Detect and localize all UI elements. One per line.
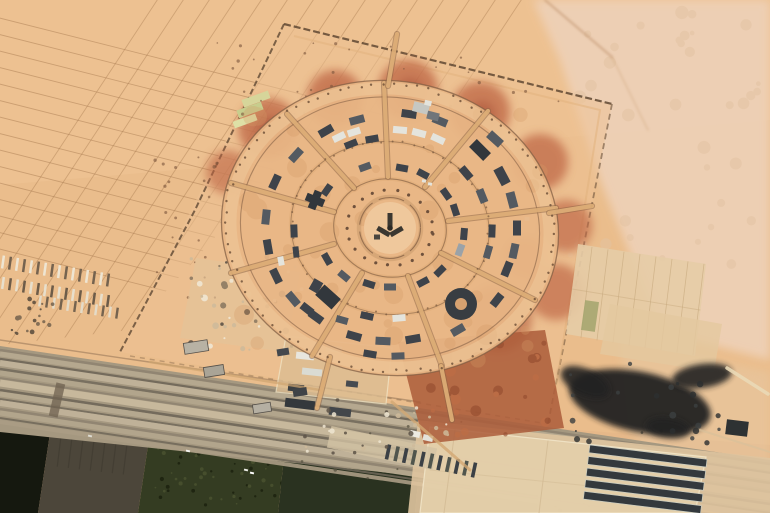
speck-dot (223, 337, 225, 339)
speck-dot (717, 428, 720, 431)
speck-dot (32, 301, 36, 305)
speck-dot (756, 81, 761, 86)
speck-dot (254, 495, 256, 497)
speck-dot (179, 455, 182, 458)
speck-dot (636, 21, 644, 29)
speck-dot (444, 338, 455, 349)
speck-dot (164, 211, 167, 214)
speck-dot (746, 91, 755, 100)
speck-dot (167, 489, 170, 492)
speck-dot (524, 90, 527, 93)
speck-dot (610, 43, 619, 52)
speck-dot (628, 362, 632, 366)
speck-dot (575, 430, 577, 432)
speck-dot (200, 295, 203, 298)
speck-dot (366, 477, 368, 479)
speck-dot (654, 393, 660, 399)
speck-dot (331, 451, 334, 454)
speck-dot (240, 472, 243, 475)
speck-dot (16, 332, 19, 335)
speck-dot (265, 468, 267, 470)
rect (346, 380, 359, 387)
speck-dot (413, 423, 417, 427)
speck-dot (431, 409, 435, 413)
speck-dot (455, 432, 461, 438)
speck-dot (171, 472, 173, 474)
speck-dot (200, 467, 204, 471)
speck-dot (191, 489, 195, 493)
building (261, 209, 271, 225)
speck-dot (329, 428, 334, 433)
speck-dot (690, 392, 696, 398)
speck-dot (249, 467, 253, 471)
speck-dot (558, 100, 560, 102)
speck-dot (270, 484, 273, 487)
speck-dot (396, 413, 401, 418)
speck-dot (620, 215, 631, 226)
speck-dot (197, 281, 203, 287)
speck-dot (694, 404, 698, 408)
speck-dot (332, 412, 337, 417)
speck-dot (47, 323, 51, 327)
speck-dot (231, 470, 234, 473)
speck-dot (403, 68, 405, 70)
speck-dot (704, 164, 711, 171)
speck-dot (545, 417, 551, 423)
speck-dot (194, 483, 197, 486)
speck-dot (738, 98, 750, 110)
speck-dot (26, 330, 29, 333)
speck-dot (27, 297, 32, 302)
building (393, 126, 408, 134)
speck-dot (450, 386, 460, 396)
building (422, 179, 426, 183)
speck-dot (468, 71, 470, 73)
speck-dot (384, 319, 393, 328)
speck-dot (523, 395, 527, 399)
speck-dot (232, 491, 234, 493)
satellite-view (0, 0, 770, 513)
speck-dot (248, 484, 252, 488)
satellite-image (0, 0, 770, 513)
speck-dot (747, 216, 756, 225)
speck-dot (27, 306, 31, 310)
speck-dot (184, 477, 187, 480)
speck-dot (726, 259, 736, 269)
speck-dot (585, 80, 597, 92)
speck-dot (670, 99, 682, 111)
speck-dot (261, 478, 265, 482)
speck-dot (445, 423, 447, 425)
speck-dot (287, 158, 307, 178)
speck-dot (195, 454, 198, 457)
speck-dot (384, 412, 389, 417)
speck-dot (569, 373, 572, 376)
building (391, 352, 404, 359)
speck-dot (251, 336, 264, 349)
speck-dot (254, 319, 258, 323)
speck-dot (38, 315, 41, 318)
speck-dot (460, 56, 462, 58)
speck-dot (156, 271, 158, 273)
speck-dot (232, 323, 236, 327)
speck-dot (51, 302, 55, 306)
speck-dot (685, 47, 695, 57)
speck-dot (586, 439, 592, 445)
speck-dot (243, 90, 245, 92)
speck-dot (344, 432, 347, 435)
speck-dot (33, 319, 37, 323)
speck-dot (234, 463, 236, 465)
speck-dot (378, 440, 381, 443)
speck-dot (435, 66, 437, 68)
speck-dot (412, 444, 415, 447)
speck-dot (229, 279, 233, 283)
speck-dot (11, 329, 13, 331)
building (292, 246, 299, 258)
speck-dot (493, 391, 499, 397)
speck-dot (220, 322, 224, 326)
speck-dot (162, 162, 165, 165)
speck-dot (222, 283, 228, 289)
speck-dot (36, 322, 40, 326)
speck-dot (478, 81, 481, 84)
building (460, 228, 468, 241)
speck-dot (323, 425, 326, 428)
speck-dot (361, 444, 363, 446)
layer-circle-center (359, 197, 421, 259)
speck-dot (407, 425, 410, 428)
speck-dot (163, 490, 166, 493)
speck-dot (210, 470, 212, 472)
speck-dot (179, 481, 183, 485)
speck-dot (296, 91, 298, 93)
speck-dot (231, 67, 234, 70)
speck-dot (212, 165, 216, 169)
speck-dot (697, 141, 710, 154)
building (392, 314, 406, 322)
rect (725, 419, 749, 437)
speck-dot (42, 320, 45, 323)
speck-dot (571, 394, 575, 398)
speck-dot (260, 100, 262, 102)
speck-dot (622, 109, 635, 122)
speck-dot (461, 428, 469, 436)
speck-dot (234, 305, 254, 325)
speck-dot (616, 391, 620, 395)
speck-dot (675, 6, 688, 19)
speck-dot (695, 239, 701, 245)
speck-dot (208, 196, 211, 199)
speck-dot (218, 267, 221, 270)
speck-dot (162, 451, 166, 455)
speck-dot (248, 349, 250, 351)
speck-dot (197, 239, 199, 241)
speck-dot (415, 406, 418, 409)
building (488, 224, 495, 237)
speck-dot (209, 497, 212, 500)
speck-dot (212, 476, 214, 478)
speck-dot (197, 156, 199, 158)
speck-dot (446, 433, 449, 436)
speck-dot (670, 428, 676, 434)
speck-dot (348, 48, 350, 50)
speck-dot (334, 468, 337, 471)
speck-dot (669, 412, 676, 419)
speck-dot (303, 52, 306, 55)
circle (455, 298, 467, 310)
speck-dot (533, 374, 539, 380)
speck-dot (390, 46, 392, 48)
speck-dot (17, 315, 22, 320)
speck-dot (204, 256, 207, 259)
building (384, 284, 396, 291)
speck-dot (155, 487, 157, 489)
speck-dot (232, 495, 235, 498)
speck-dot (627, 234, 634, 241)
building (513, 221, 521, 236)
speck-dot (203, 471, 207, 475)
speck-dot (301, 460, 304, 463)
speck-dot (513, 108, 527, 122)
speck-dot (243, 106, 263, 126)
building (375, 337, 390, 346)
speck-dot (449, 172, 461, 184)
speck-dot (305, 445, 308, 448)
speck-dot (690, 436, 694, 440)
speck-dot (236, 503, 238, 505)
speck-dot (726, 101, 734, 109)
satellite-image-svg (0, 0, 770, 513)
speck-dot (426, 383, 436, 393)
speck-dot (717, 199, 725, 207)
speck-dot (174, 216, 177, 219)
speck-dot (312, 42, 314, 44)
speck-dot (220, 302, 226, 308)
speck-dot (190, 257, 193, 260)
speck-dot (470, 405, 481, 416)
speck-dot (740, 19, 751, 30)
speck-dot (153, 159, 156, 162)
speck-dot (336, 398, 340, 402)
speck-dot (730, 157, 742, 169)
speck-dot (239, 497, 242, 500)
speck-dot (41, 303, 43, 305)
speck-dot (215, 162, 218, 165)
speck-dot (690, 31, 695, 36)
speck-dot (223, 325, 227, 329)
speck-dot (353, 451, 356, 454)
speck-dot (175, 478, 178, 481)
speck-dot (693, 428, 699, 434)
speck-dot (273, 494, 276, 497)
speck-dot (217, 42, 219, 44)
speck-dot (413, 412, 415, 414)
speck-dot (521, 326, 530, 335)
speck-dot (239, 44, 242, 47)
speck-dot (178, 462, 181, 465)
speck-dot (522, 340, 534, 352)
speck-dot (40, 308, 42, 310)
speck-dot (163, 185, 166, 188)
speck-dot (310, 89, 312, 91)
speck-dot (220, 498, 222, 500)
speck-dot (167, 180, 170, 183)
circle (387, 225, 393, 231)
speck-dot (204, 503, 207, 506)
speck-dot (240, 346, 245, 351)
speck-dot (675, 36, 683, 44)
speck-dot (236, 59, 239, 62)
speck-dot (676, 382, 679, 385)
speck-dot (242, 300, 245, 303)
speck-dot (372, 165, 380, 173)
rect (374, 235, 380, 240)
speck-dot (203, 179, 206, 182)
speck-dot (199, 475, 203, 479)
rect (388, 213, 393, 227)
building (290, 224, 297, 237)
speck-dot (668, 384, 674, 390)
speck-dot (326, 408, 331, 413)
speck-dot (306, 450, 309, 453)
speck-dot (453, 410, 459, 416)
speck-dot (688, 10, 697, 19)
speck-dot (190, 276, 194, 280)
speck-dot (166, 485, 170, 489)
speck-dot (228, 317, 230, 319)
speck-dot (574, 436, 580, 442)
speck-dot (396, 468, 398, 470)
speck-dot (30, 330, 35, 335)
speck-dot (528, 354, 537, 363)
speck-dot (218, 265, 220, 267)
speck-dot (174, 166, 177, 169)
speck-dot (434, 426, 438, 430)
speck-dot (541, 341, 546, 346)
speck-dot (160, 477, 164, 481)
speck-dot (716, 413, 721, 418)
speck-dot (332, 71, 335, 74)
speck-dot (385, 445, 389, 449)
speck-dot (334, 42, 337, 45)
speck-dot (697, 381, 703, 387)
building (428, 182, 432, 186)
speck-dot (159, 496, 163, 500)
speck-dot (303, 435, 307, 439)
speck-dot (172, 236, 174, 238)
speck-dot (212, 322, 219, 329)
speck-dot (260, 489, 263, 492)
speck-dot (503, 432, 507, 436)
speck-dot (253, 59, 255, 61)
speck-dot (570, 418, 576, 424)
speck-dot (212, 303, 216, 307)
speck-dot (704, 440, 709, 445)
speck-dot (428, 416, 431, 419)
speck-dot (708, 224, 715, 231)
speck-dot (408, 431, 413, 436)
speck-dot (258, 325, 261, 328)
speck-dot (512, 91, 515, 94)
